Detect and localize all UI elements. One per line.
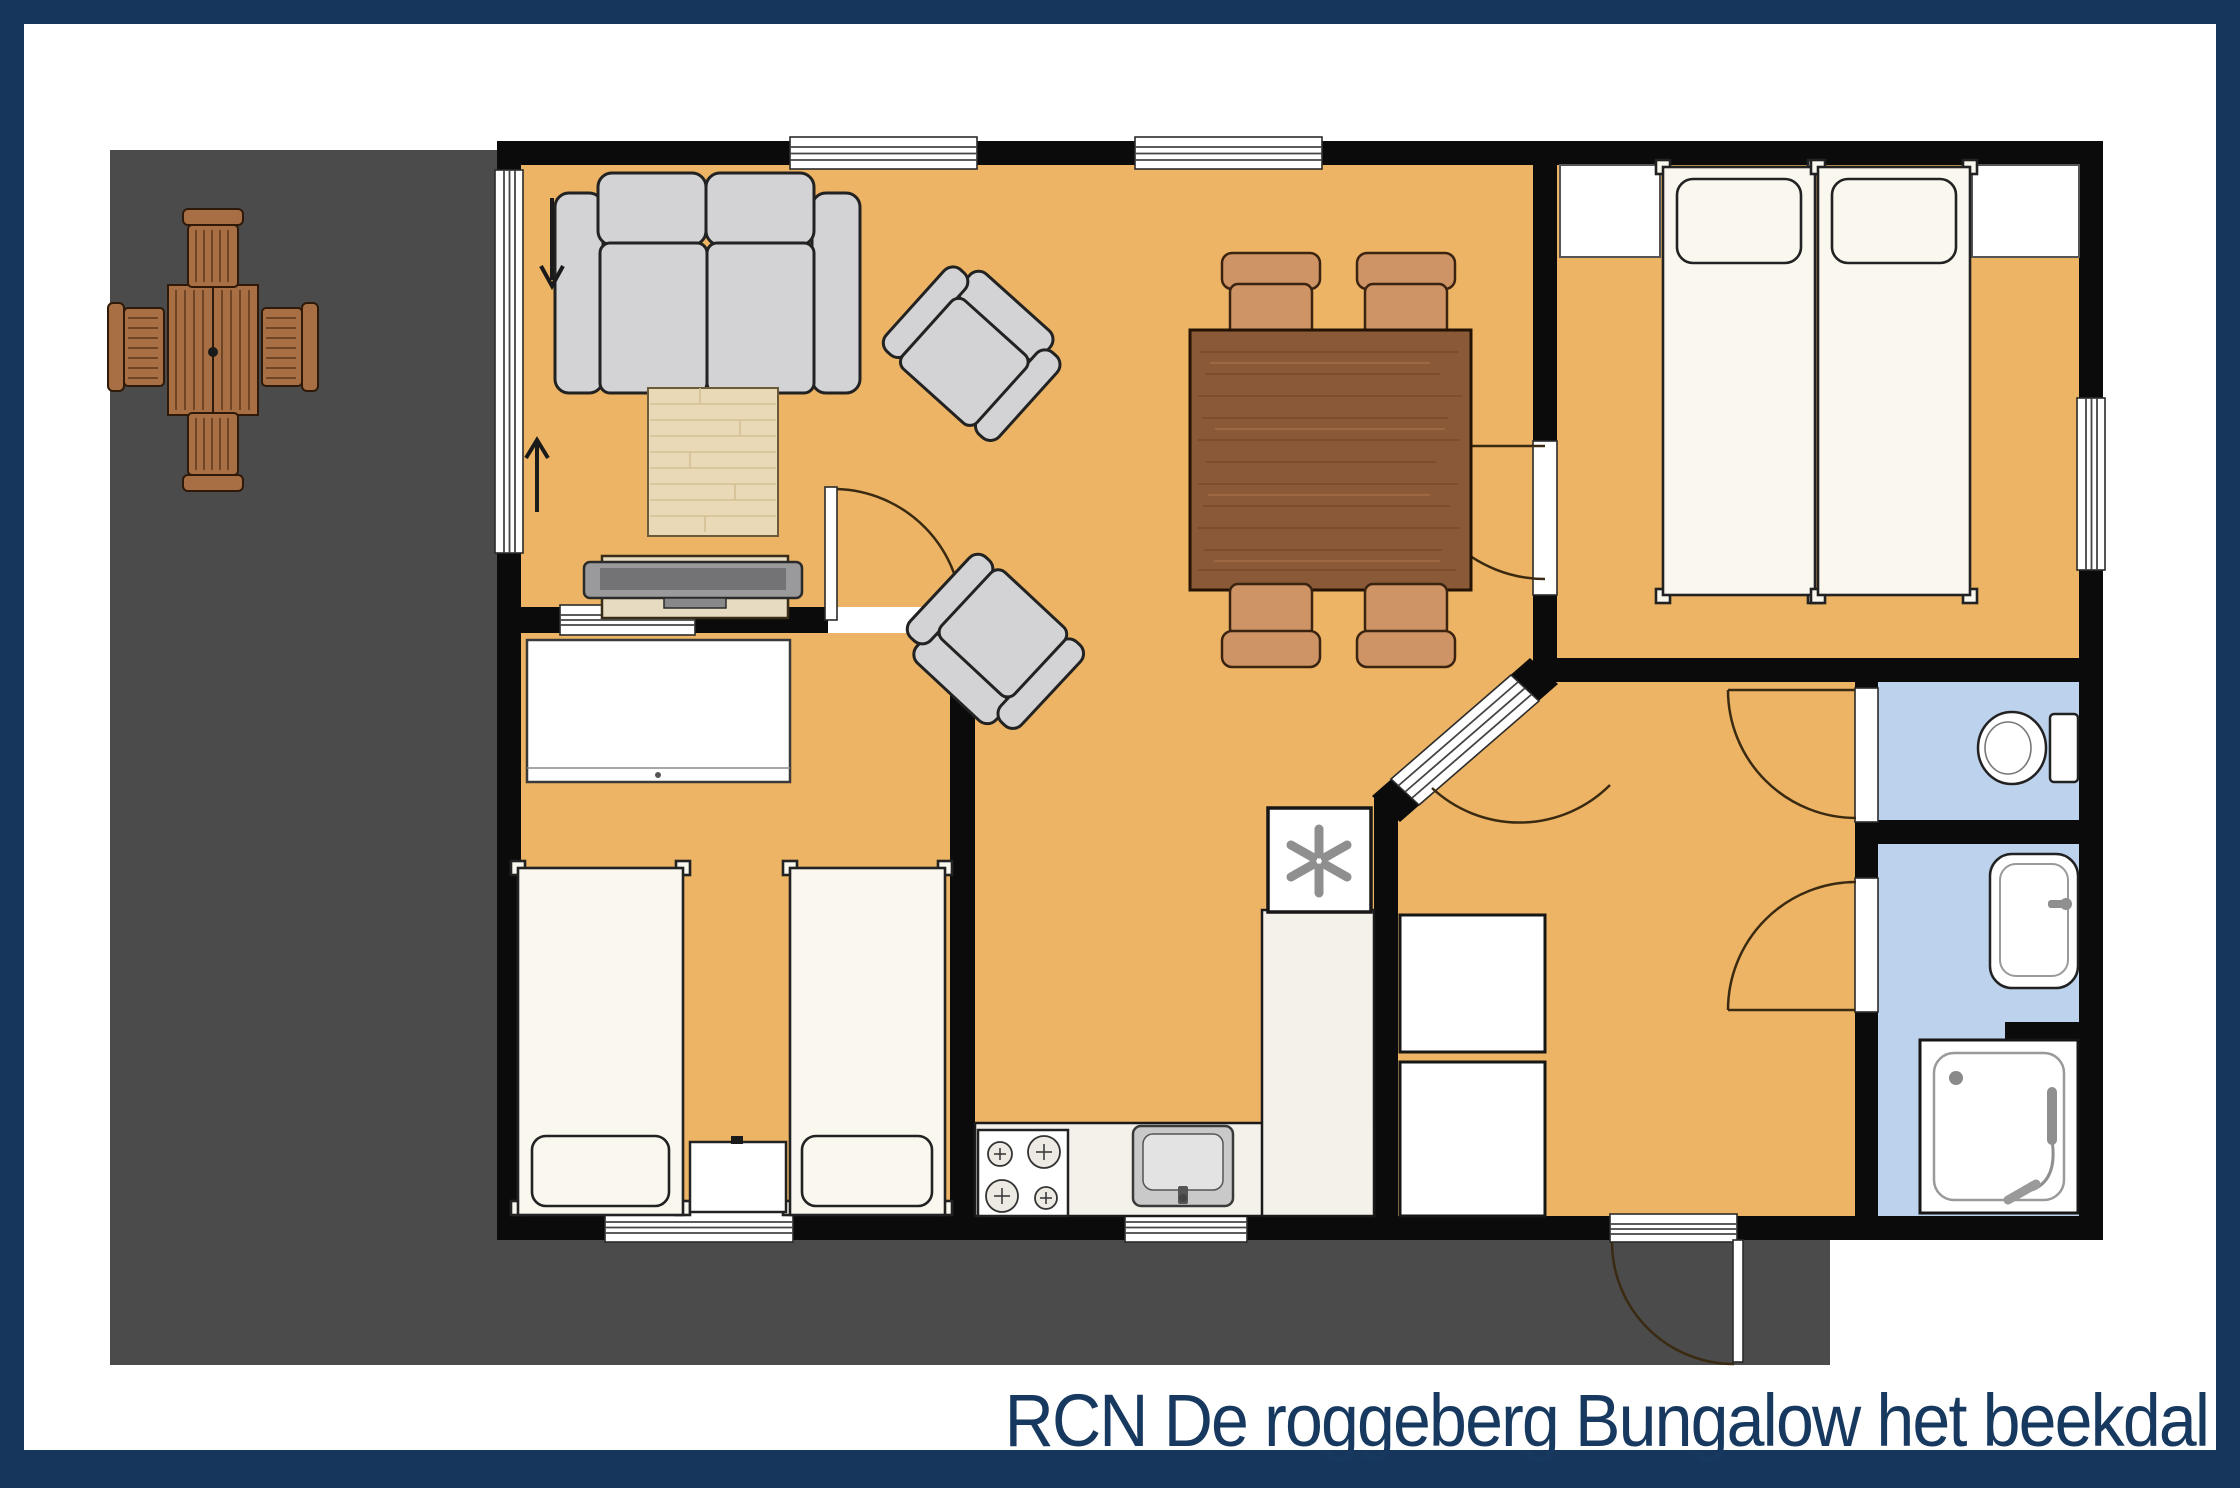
kitchen-counter xyxy=(1262,910,1374,1216)
dining-chair xyxy=(1222,253,1320,336)
window-bottom-bedroom xyxy=(605,1212,793,1242)
hall xyxy=(1400,915,1545,1216)
drain-icon xyxy=(1949,1071,1963,1085)
bed xyxy=(511,861,690,1215)
pillow xyxy=(1832,179,1956,263)
toilet xyxy=(1978,712,2078,784)
closet xyxy=(1972,165,2079,257)
rug xyxy=(648,388,778,536)
pillow xyxy=(1677,179,1801,263)
bed xyxy=(1811,160,1977,603)
window-living-top xyxy=(790,137,977,169)
dining-chair xyxy=(1357,253,1455,336)
bed xyxy=(783,861,952,1215)
terrace-chair-top xyxy=(183,209,243,287)
sofa xyxy=(555,173,860,393)
window-left-sliding-door xyxy=(495,170,523,553)
storage-closet xyxy=(1400,915,1545,1052)
dining-chair xyxy=(1222,584,1320,667)
nightstand xyxy=(690,1136,786,1212)
kitchen-sink xyxy=(1133,1126,1233,1206)
refrigerator xyxy=(1268,808,1371,912)
stove xyxy=(978,1130,1068,1216)
window-right-bedroom xyxy=(2077,398,2105,570)
pillow xyxy=(532,1136,669,1206)
bathroom-sink xyxy=(1990,854,2078,988)
shower xyxy=(1920,1040,2078,1213)
plan-title: RCN De roggeberg Bungalow het beekdal xyxy=(1004,1378,2208,1463)
toilet-room xyxy=(1978,712,2078,784)
terrace-table xyxy=(168,285,258,415)
window-dining-top xyxy=(1135,137,1322,169)
pillow xyxy=(802,1136,932,1206)
terrace-chair-left xyxy=(108,303,164,391)
terrace-chair-bottom xyxy=(183,413,243,491)
closet xyxy=(1560,165,1660,257)
storage-closet xyxy=(1400,1062,1545,1216)
tv-cabinet xyxy=(584,556,802,618)
floorplan-image: RCN De roggeberg Bungalow het beekdal xyxy=(0,0,2240,1488)
dining-table xyxy=(1190,330,1471,590)
wardrobe xyxy=(527,640,790,782)
terrace-chair-right xyxy=(262,303,318,391)
dining-chair xyxy=(1357,584,1455,667)
bed xyxy=(1656,160,1822,603)
